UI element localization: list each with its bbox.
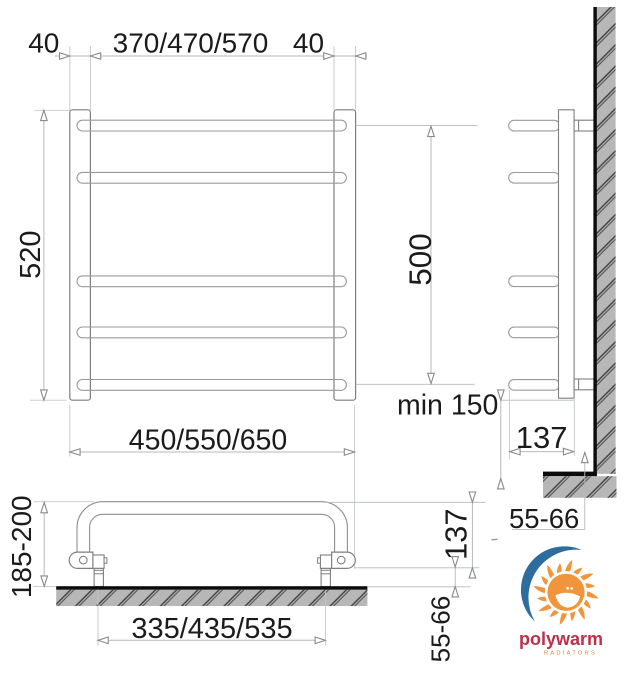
svg-text:min 150: min 150: [397, 390, 498, 422]
svg-text:370/470/570: 370/470/570: [113, 27, 269, 58]
svg-text:40: 40: [28, 27, 59, 58]
svg-text:40: 40: [293, 27, 324, 58]
svg-text:RADIATORS: RADIATORS: [544, 651, 597, 657]
svg-text:55-66: 55-66: [425, 596, 455, 663]
svg-text:137: 137: [439, 508, 474, 560]
svg-text:500: 500: [402, 233, 438, 286]
svg-text:137: 137: [516, 420, 568, 455]
svg-text:185-200: 185-200: [6, 495, 37, 598]
svg-text:polywarm: polywarm: [519, 629, 603, 649]
svg-text:335/435/535: 335/435/535: [131, 613, 292, 645]
svg-text:55-66: 55-66: [509, 503, 579, 534]
svg-text:520: 520: [15, 231, 47, 279]
svg-text:450/550/650: 450/550/650: [129, 424, 288, 456]
